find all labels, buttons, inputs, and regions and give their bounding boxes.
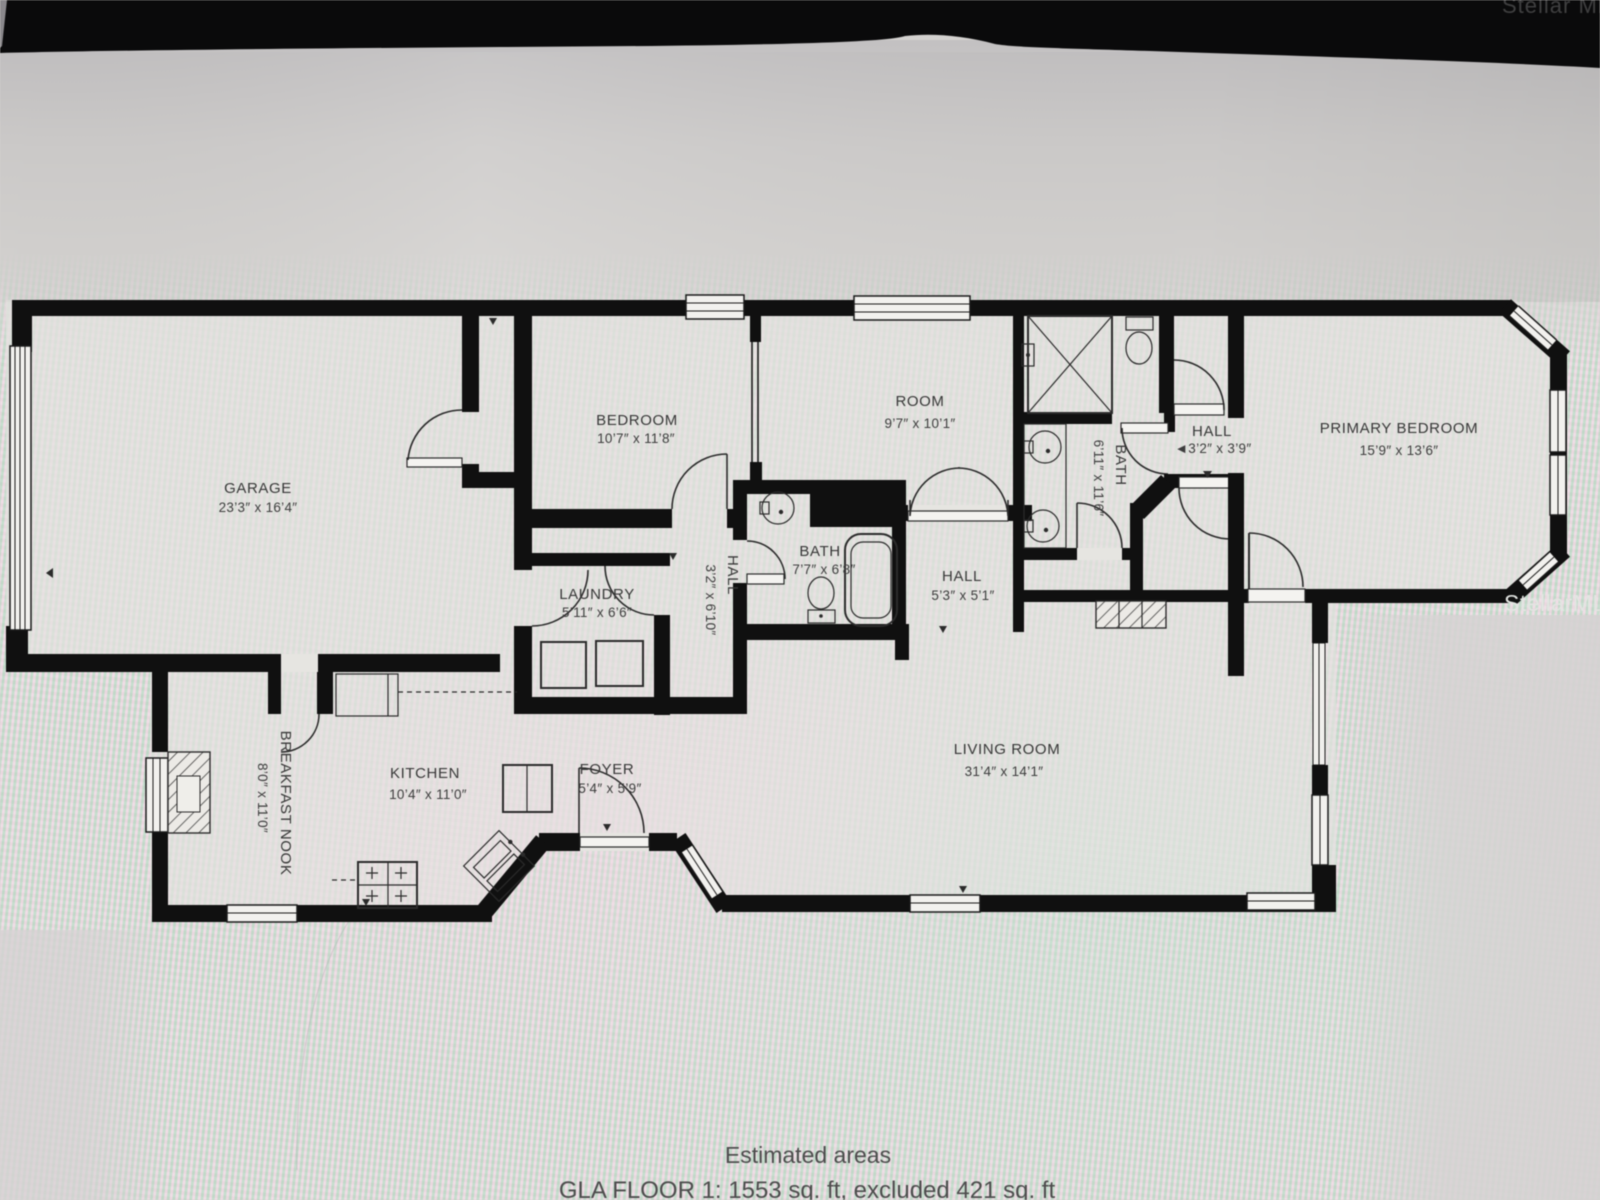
svg-text:GARAGE: GARAGE <box>224 480 292 497</box>
svg-text:Stellar MLS: Stellar MLS <box>1502 0 1600 18</box>
svg-text:8’0″ x 11’0″: 8’0″ x 11’0″ <box>255 763 270 833</box>
svg-text:7’7″ x 6’8″: 7’7″ x 6’8″ <box>792 562 855 577</box>
svg-text:BATH: BATH <box>1112 444 1129 485</box>
svg-text:LAUNDRY: LAUNDRY <box>559 586 635 603</box>
svg-text:15’9″ x 13’6″: 15’9″ x 13’6″ <box>1360 443 1439 458</box>
svg-text:StellarMLS: StellarMLS <box>1504 590 1600 616</box>
svg-text:Estimated areas: Estimated areas <box>725 1142 891 1168</box>
svg-text:◄3’2″ x 3’9″: ◄3’2″ x 3’9″ <box>1175 441 1252 456</box>
svg-text:KITCHEN: KITCHEN <box>390 765 460 782</box>
svg-text:10’4″ x 11’0″: 10’4″ x 11’0″ <box>389 787 467 802</box>
svg-text:PRIMARY BEDROOM: PRIMARY BEDROOM <box>1320 420 1478 437</box>
svg-text:GLA FLOOR 1: 1553 sq. ft, excl: GLA FLOOR 1: 1553 sq. ft, excluded 421 s… <box>559 1177 1056 1200</box>
svg-text:31’4″ x 14’1″: 31’4″ x 14’1″ <box>965 764 1044 779</box>
svg-text:3’2″ x 6’10″: 3’2″ x 6’10″ <box>703 565 718 636</box>
svg-text:LIVING ROOM: LIVING ROOM <box>954 741 1061 758</box>
svg-text:9’7″ x 10’1″: 9’7″ x 10’1″ <box>885 416 956 431</box>
svg-text:5’4″ x 5’9″: 5’4″ x 5’9″ <box>578 781 641 796</box>
svg-text:ROOM: ROOM <box>895 393 944 410</box>
svg-text:5’3″ x 5’1″: 5’3″ x 5’1″ <box>931 588 994 603</box>
svg-text:10’7″ x 11’8″: 10’7″ x 11’8″ <box>597 431 675 446</box>
svg-text:HALL: HALL <box>724 555 741 595</box>
svg-text:BREAKFAST NOOK: BREAKFAST NOOK <box>277 731 294 876</box>
svg-text:6’11″ x 11’6″: 6’11″ x 11’6″ <box>1091 440 1106 517</box>
svg-text:FOYER: FOYER <box>580 761 635 778</box>
svg-text:BEDROOM: BEDROOM <box>596 412 678 429</box>
svg-text:BATH: BATH <box>799 543 840 560</box>
svg-text:5’11″ x 6’6″: 5’11″ x 6’6″ <box>562 605 632 620</box>
svg-text:HALL: HALL <box>1192 423 1232 440</box>
svg-text:HALL: HALL <box>942 568 982 585</box>
svg-text:23’3″ x 16’4″: 23’3″ x 16’4″ <box>219 500 298 515</box>
